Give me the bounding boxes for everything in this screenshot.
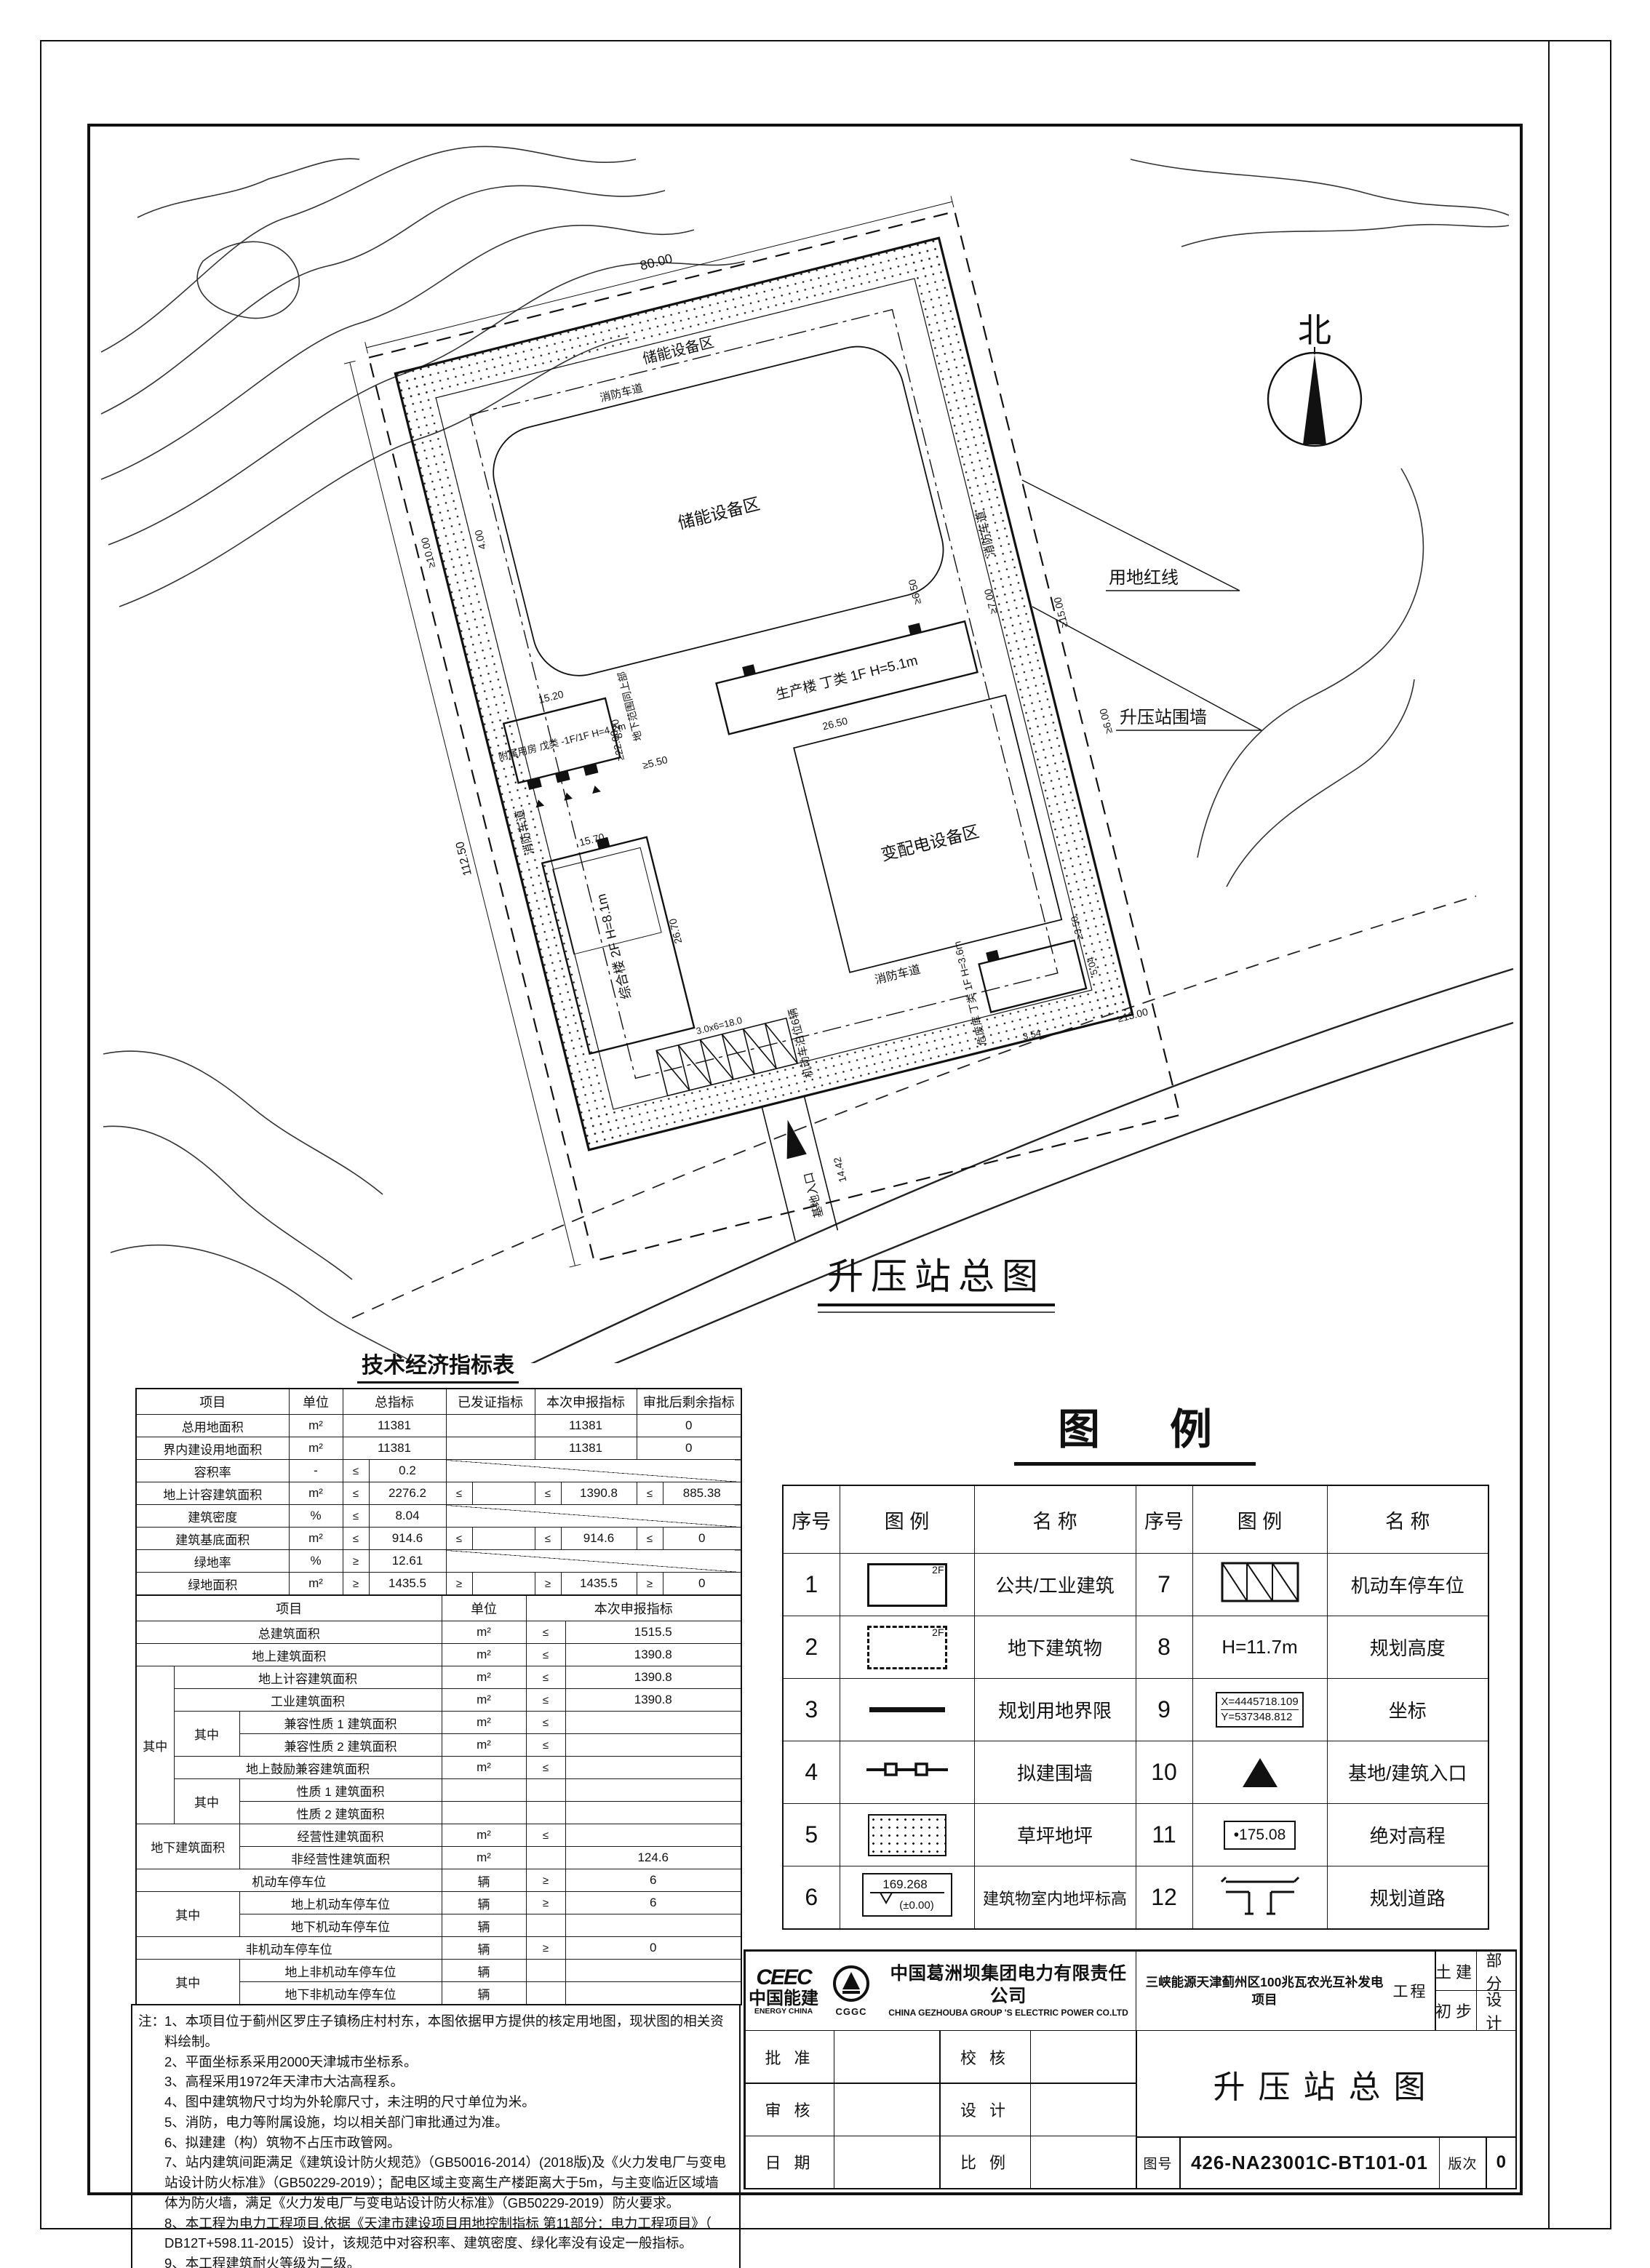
notes-body: 1、本项目位于蓟州区罗庄子镇杨庄村村东，本图依据甲方提供的核定用地图，现状图的相… (164, 2011, 732, 2268)
table-cell: 审批后剩余指标 (637, 1389, 741, 1415)
entrance-label: 基地入口 (802, 1171, 826, 1219)
elevation-value: •175.08 (1224, 1821, 1296, 1850)
table-cell: 11381 (535, 1437, 637, 1460)
legend-no: 4 (783, 1741, 840, 1804)
legend-symbol-entrance (1192, 1741, 1327, 1804)
dim: 4.00 (472, 529, 488, 551)
legend-name: 基地/建筑入口 (1327, 1741, 1488, 1804)
table-cell: ≤ (343, 1482, 369, 1505)
table-cell: ≤ (343, 1528, 369, 1550)
table-cell: 单位 (442, 1595, 526, 1621)
table-cell: 兼容性质 2 建筑面积 (239, 1734, 442, 1757)
design-label: 设 计 (939, 2083, 1031, 2136)
scale-value (1030, 2136, 1137, 2189)
legend-no: 7 (1136, 1554, 1192, 1616)
table-cell: 界内建设用地面积 (136, 1437, 289, 1460)
legend-name: 坐标 (1327, 1679, 1488, 1741)
note-line: 1、本项目位于蓟州区罗庄子镇杨庄村村东，本图依据甲方提供的核定用地图，现状图的相… (164, 2011, 732, 2052)
legend-name: 绝对高程 (1327, 1804, 1488, 1866)
table-cell: ≤ (535, 1482, 561, 1505)
fire-lane-label-bottom: 消防车道 (874, 963, 922, 987)
drawing-title: 升压站总图 (1136, 2030, 1517, 2138)
table-cell: ≤ (526, 1712, 565, 1734)
scale-label: 比 例 (939, 2136, 1031, 2189)
table-cell: 非机动车停车位 (136, 1937, 442, 1960)
dim: 80.00 (639, 251, 674, 273)
table-cell: 地下机动车停车位 (239, 1914, 442, 1937)
table-cell: 11381 (343, 1415, 446, 1437)
legend-symbol-parking (1192, 1554, 1327, 1616)
entrance-arrow-icon (778, 1117, 807, 1159)
ceec-mark-icon: CEEC (749, 1966, 818, 1989)
title-block: CEEC 中国能建 ENERGY CHINA CGGC 中国葛洲坝集团电力有限责… (744, 1949, 1517, 2189)
ceec-cn: 中国能建 (749, 1989, 818, 2008)
table-cell: 地上非机动车停车位 (239, 1960, 442, 1982)
project-suffix: 工程 (1393, 1980, 1435, 2002)
company-name-en: CHINA GEZHOUBA GROUP 'S ELECTRIC POWER C… (884, 2008, 1133, 2019)
sheet-binding-line (1548, 40, 1550, 2228)
table-cell: 兼容性质 1 建筑面积 (239, 1712, 442, 1734)
table-cell (565, 1914, 741, 1937)
approve-value (834, 2030, 941, 2084)
table-cell: 性质 1 建筑面积 (239, 1779, 442, 1802)
table-cell: ≤ (526, 1644, 565, 1666)
site-plan: 储能设备区 消防车道 储能设备区 变配电设备区 生产楼 丁类 1F H=5.1m… (90, 127, 1514, 1363)
legend-symbol-building: 2F (840, 1554, 974, 1616)
part-label: 部分 (1476, 1951, 1517, 1991)
dim: ≥6.00 (1097, 707, 1115, 735)
table-cell: 建筑基底面积 (136, 1528, 289, 1550)
cggc-logo: CGGC (824, 1965, 878, 2017)
legend-no: 1 (783, 1554, 840, 1616)
note-line: 3、高程采用1972年天津市大沽高程系。 (164, 2072, 732, 2092)
legend-header: 图 例 (840, 1485, 974, 1554)
table-cell: 0 (663, 1528, 741, 1550)
table-cell: 12.61 (369, 1550, 446, 1573)
north-label: 北 (1298, 311, 1331, 349)
legend-name: 建筑物室内地坪标高 (974, 1866, 1136, 1930)
table-cell: 地上计容建筑面积 (136, 1482, 289, 1505)
dim: 26.50 (821, 715, 849, 732)
figure-no-label: 图号 (1136, 2136, 1181, 2189)
legend-no: 11 (1136, 1804, 1192, 1866)
legend-name: 规划高度 (1327, 1616, 1488, 1679)
table-cell: ≤ (446, 1482, 472, 1505)
drawing-sheet: 储能设备区 消防车道 储能设备区 变配电设备区 生产楼 丁类 1F H=5.1m… (0, 0, 1650, 2268)
table-cell: % (289, 1505, 343, 1528)
table-cell: 建筑密度 (136, 1505, 289, 1528)
table-cell: m² (289, 1415, 343, 1437)
table-cell: 地下非机动车停车位 (239, 1982, 442, 2005)
table-cell (442, 1779, 526, 1802)
table-cell (446, 1415, 535, 1437)
table-cell (472, 1482, 535, 1505)
table-cell: 总指标 (343, 1389, 446, 1415)
notes: 注： 1、本项目位于蓟州区罗庄子镇杨庄村村东，本图依据甲方提供的核定用地图，现状… (131, 2004, 741, 2268)
north-needle-icon (1303, 354, 1326, 444)
legend-symbol-height: H=11.7m (1192, 1616, 1327, 1679)
table-cell: 其中 (136, 1960, 239, 2005)
stage-value: 初步 (1435, 1990, 1477, 2032)
table-cell: ≤ (343, 1460, 369, 1482)
power-area-label: 变配电设备区 (879, 822, 981, 865)
legend-header: 序号 (1136, 1485, 1192, 1554)
table-cell: 1515.5 (565, 1621, 741, 1644)
dim: ≥6.50 (906, 578, 923, 606)
table-cell: ≥ (446, 1573, 472, 1596)
legend-symbol-elevation: •175.08 (1192, 1804, 1327, 1866)
dim: 112.50 (454, 840, 474, 877)
table-cell: 1390.8 (565, 1666, 741, 1689)
station-site: 储能设备区 消防车道 储能设备区 变配电设备区 生产楼 丁类 1F H=5.1m… (327, 175, 1215, 1298)
legend-no: 5 (783, 1804, 840, 1866)
table-cell: m² (442, 1644, 526, 1666)
review-value (834, 2083, 941, 2136)
table-cell: 11381 (535, 1415, 637, 1437)
table-cell (446, 1437, 535, 1460)
table-cell: 6 (565, 1892, 741, 1914)
table-cell: 地下建筑面积 (136, 1824, 239, 1869)
legend-title-text: 图 例 (1014, 1395, 1256, 1466)
table-cell: 地上计容建筑面积 (174, 1666, 442, 1689)
table-cell: 地上鼓励兼容建筑面积 (174, 1757, 442, 1779)
check-value (1030, 2030, 1137, 2084)
table-cell: 辆 (442, 1982, 526, 2005)
table-cell: 124.6 (565, 1847, 741, 1869)
legend-no: 10 (1136, 1741, 1192, 1804)
table-cell: ≤ (535, 1528, 561, 1550)
coord-x: X=4445718.109 (1221, 1695, 1298, 1710)
table-cell: 辆 (442, 1869, 526, 1892)
legend-symbol-underground-building: 2F (840, 1616, 974, 1679)
table-cell: 项目 (136, 1389, 289, 1415)
table-cell: 绿地率 (136, 1550, 289, 1573)
table-cell (526, 1960, 565, 1982)
dim: ≥15.00 (1051, 596, 1070, 629)
economic-table-part-b: 项目单位本次申报指标总建筑面积m²≤1515.5地上建筑面积m²≤1390.8其… (135, 1594, 742, 2005)
table-cell: 2276.2 (369, 1482, 446, 1505)
table-cell: 总用地面积 (136, 1415, 289, 1437)
table-cell: 885.38 (663, 1482, 741, 1505)
revision-value: 0 (1486, 2136, 1517, 2189)
legend-header: 图 例 (1192, 1485, 1327, 1554)
wall-label: 升压站围墙 (1120, 708, 1207, 727)
dim: 26.70 (666, 917, 684, 945)
legend-symbol-boundary (840, 1679, 974, 1741)
table-cell: ≥ (343, 1550, 369, 1573)
legend-name: 规划用地界限 (974, 1679, 1136, 1741)
table-cell: m² (289, 1528, 343, 1550)
legend-header: 名 称 (974, 1485, 1136, 1554)
table-cell: m² (442, 1757, 526, 1779)
project-name: 三峡能源天津蓟州区100兆瓦农光互补发电项目 (1136, 1973, 1393, 2009)
table-cell: m² (442, 1734, 526, 1757)
table-cell: 本次申报指标 (526, 1595, 741, 1621)
legend-no: 8 (1136, 1616, 1192, 1679)
design-value (1030, 2083, 1137, 2136)
legend-name: 草坪地坪 (974, 1804, 1136, 1866)
table-cell: m² (289, 1482, 343, 1505)
table-cell: 0 (663, 1573, 741, 1596)
table-cell: 0 (637, 1437, 741, 1460)
table-cell (446, 1550, 741, 1573)
table-cell (565, 1824, 741, 1847)
storage-label: 储能设备区 (676, 494, 762, 532)
company-name-cn: 中国葛洲坝集团电力有限责任公司 (884, 1963, 1133, 2008)
table-cell: 1390.8 (561, 1482, 637, 1505)
table-cell: 地上机动车停车位 (239, 1892, 442, 1914)
composite-label: 综合楼 2F H=8.1m (594, 893, 634, 1001)
legend-no: 2 (783, 1616, 840, 1679)
dim: 3.0x6=18.0 (695, 1015, 743, 1037)
plan-title-group: 升压站总图 (818, 1256, 1055, 1312)
table-cell: ≥ (637, 1573, 663, 1596)
date-label: 日 期 (745, 2136, 834, 2189)
table-cell: 0.2 (369, 1460, 446, 1482)
table-cell: 工业建筑面积 (174, 1689, 442, 1712)
table-cell: ≤ (526, 1689, 565, 1712)
note-line: 2、平面坐标系采用2000天津城市坐标系。 (164, 2052, 732, 2072)
project-cell: 三峡能源天津蓟州区100兆瓦农光互补发电项目 工程 (1136, 1951, 1436, 2031)
table-cell: 1390.8 (565, 1644, 741, 1666)
table-cell (565, 1779, 741, 1802)
revision-label: 版次 (1439, 2136, 1487, 2189)
floor-tag: 2F (932, 1626, 944, 1638)
legend-no: 6 (783, 1866, 840, 1930)
approve-label: 批 准 (745, 2030, 834, 2084)
note-line: 6、拟建建（构）筑物不占压市政管网。 (164, 2133, 732, 2153)
table-cell: ≤ (637, 1482, 663, 1505)
table-cell: 8.04 (369, 1505, 446, 1528)
table-cell: 6 (565, 1869, 741, 1892)
legend-name: 公共/工业建筑 (974, 1554, 1136, 1616)
legend-no: 12 (1136, 1866, 1192, 1930)
lawn-band (395, 238, 1132, 1150)
table-cell: ≤ (526, 1734, 565, 1757)
table-cell: ≥ (343, 1573, 369, 1596)
legend-name: 机动车停车位 (1327, 1554, 1488, 1616)
legend-table: 序号 图 例 名 称 序号 图 例 名 称 1 2F 公共/工业建筑 7 机动车… (782, 1485, 1489, 1930)
table-cell: ≤ (446, 1528, 472, 1550)
table-cell: m² (442, 1712, 526, 1734)
review-label: 审 核 (745, 2083, 834, 2136)
table-cell: m² (442, 1689, 526, 1712)
note-line: 8、本工程为电力工程项目,依据《天津市建设项目用地控制指标 第11部分：电力工程… (164, 2213, 732, 2254)
level-top: 169.268 (882, 1877, 927, 1891)
date-value (834, 2136, 941, 2189)
legend-symbol-floor-level: 169.268 (±0.00) (840, 1866, 974, 1930)
table-cell: 容积率 (136, 1460, 289, 1482)
table-cell (472, 1573, 535, 1596)
legend-no: 3 (783, 1679, 840, 1741)
table-cell: 非经营性建筑面积 (239, 1847, 442, 1869)
check-label: 校 核 (939, 2030, 1031, 2084)
economic-table-section: 技术经济指标表 项目单位总指标已发证指标本次申报指标审批后剩余指标总用地面积m²… (135, 1347, 741, 2268)
red-line-label: 用地红线 (1109, 568, 1179, 588)
table-cell: 辆 (442, 1960, 526, 1982)
table-cell (526, 1779, 565, 1802)
coord-y: Y=537348.812 (1221, 1710, 1298, 1725)
table-cell (565, 1802, 741, 1824)
cggc-text: CGGC (824, 2006, 878, 2017)
table-cell: 地上建筑面积 (136, 1644, 442, 1666)
table-cell: 总建筑面积 (136, 1621, 442, 1644)
table-cell: 单位 (289, 1389, 343, 1415)
floor-tag: 2F (932, 1564, 944, 1576)
table-cell: 性质 2 建筑面积 (239, 1802, 442, 1824)
table-cell (565, 1734, 741, 1757)
table-cell: - (289, 1460, 343, 1482)
ceec-logo: CEEC 中国能建 ENERGY CHINA (749, 1966, 818, 2016)
economic-table-title: 技术经济指标表 (135, 1347, 741, 1383)
table-cell: m² (442, 1847, 526, 1869)
table-cell (526, 1847, 565, 1869)
stage-label: 设计 (1476, 1990, 1517, 2032)
table-cell: 其中 (136, 1892, 239, 1937)
table-cell: 1435.5 (369, 1573, 446, 1596)
table-cell (442, 1802, 526, 1824)
north-arrow: 北 (1268, 311, 1361, 446)
table-cell: 11381 (343, 1437, 446, 1460)
table-cell: m² (442, 1621, 526, 1644)
table-cell: 其中 (136, 1666, 174, 1824)
notes-label: 注： (138, 2011, 165, 2032)
legend-name: 地下建筑物 (974, 1616, 1136, 1679)
legend-header: 序号 (783, 1485, 840, 1554)
note-line: 4、图中建筑物尺寸均为外轮廓尺寸，未注明的尺寸单位为米。 (164, 2092, 732, 2112)
table-cell: ≤ (526, 1666, 565, 1689)
table-cell: m² (442, 1824, 526, 1847)
table-cell (526, 1982, 565, 2005)
dim: ≥10.00 (418, 536, 437, 570)
table-cell (446, 1460, 741, 1482)
part-value: 土建 (1435, 1951, 1477, 1991)
legend-symbol-road (1192, 1866, 1327, 1930)
ceec-en: ENERGY CHINA (749, 2008, 818, 2016)
legend-title: 图 例 (782, 1395, 1488, 1466)
table-cell (472, 1528, 535, 1550)
table-cell: ≤ (343, 1505, 369, 1528)
company-cell: CEEC 中国能建 ENERGY CHINA CGGC 中国葛洲坝集团电力有限责… (745, 1951, 1136, 2031)
table-cell: 绿地面积 (136, 1573, 289, 1596)
table-cell: ≤ (526, 1757, 565, 1779)
dim: 14.42 (831, 1156, 848, 1183)
table-cell: 914.6 (369, 1528, 446, 1550)
table-cell: 辆 (442, 1892, 526, 1914)
level-bottom: (±0.00) (899, 1899, 933, 1912)
table-cell: 辆 (442, 1914, 526, 1937)
table-cell: 其中 (174, 1779, 239, 1824)
table-cell (565, 1757, 741, 1779)
table-cell: ≤ (526, 1621, 565, 1644)
note-line: 5、消防，电力等附属设施，均以相关部门审批通过为准。 (164, 2112, 732, 2133)
table-cell: ≥ (526, 1869, 565, 1892)
table-cell: 已发证指标 (446, 1389, 535, 1415)
legend-name: 拟建围墙 (974, 1741, 1136, 1804)
table-cell: 0 (565, 1937, 741, 1960)
table-cell: 其中 (174, 1712, 239, 1757)
table-cell: % (289, 1550, 343, 1573)
legend-header: 名 称 (1327, 1485, 1488, 1554)
table-cell: 0 (637, 1415, 741, 1437)
cggc-mark-icon (832, 1965, 870, 2003)
legend-section: 图 例 序号 图 例 名 称 序号 图 例 名 称 1 2F 公共/工业建筑 7… (782, 1395, 1488, 1930)
economic-table-title-text: 技术经济指标表 (357, 1347, 519, 1383)
plan-title: 升压站总图 (827, 1256, 1045, 1297)
table-cell (565, 1982, 741, 2005)
table-cell (446, 1505, 741, 1528)
table-cell: 1390.8 (565, 1689, 741, 1712)
table-cell: 机动车停车位 (136, 1869, 442, 1892)
table-cell (565, 1960, 741, 1982)
table-cell: 914.6 (561, 1528, 637, 1550)
table-cell (565, 1712, 741, 1734)
note-line: 9、本工程建筑耐火等级为二级。 (164, 2253, 732, 2268)
table-cell: 本次申报指标 (535, 1389, 637, 1415)
table-cell: ≥ (535, 1573, 561, 1596)
table-cell: ≥ (526, 1937, 565, 1960)
fire-lane-label-top: 消防车道 (599, 382, 644, 404)
table-cell (526, 1802, 565, 1824)
legend-symbol-wall (840, 1741, 974, 1804)
table-cell: ≥ (526, 1892, 565, 1914)
table-cell: ≤ (637, 1528, 663, 1550)
production-label: 生产楼 丁类 1F H=5.1m (774, 652, 919, 703)
economic-table-part-a: 项目单位总指标已发证指标本次申报指标审批后剩余指标总用地面积m²11381113… (135, 1388, 742, 1596)
table-cell: m² (442, 1666, 526, 1689)
table-cell: m² (289, 1573, 343, 1596)
table-cell: ≤ (526, 1824, 565, 1847)
table-cell: 1435.5 (561, 1573, 637, 1596)
legend-name: 规划道路 (1327, 1866, 1488, 1930)
table-cell: 项目 (136, 1595, 442, 1621)
table-cell (526, 1914, 565, 1937)
dim: ≥5.50 (641, 754, 669, 771)
legend-symbol-coordinate: X=4445718.109Y=537348.812 (1192, 1679, 1327, 1741)
table-cell: m² (289, 1437, 343, 1460)
table-cell: 辆 (442, 1937, 526, 1960)
legend-symbol-lawn (840, 1804, 974, 1866)
legend-no: 9 (1136, 1679, 1192, 1741)
dim: 15.20 (537, 688, 565, 706)
table-cell: 经营性建筑面积 (239, 1824, 442, 1847)
note-line: 7、站内建筑间距满足《建筑设计防火规范》（GB50016-2014）(2018版… (164, 2152, 732, 2213)
figure-no-value: 426-NA23001C-BT101-01 (1179, 2136, 1440, 2189)
